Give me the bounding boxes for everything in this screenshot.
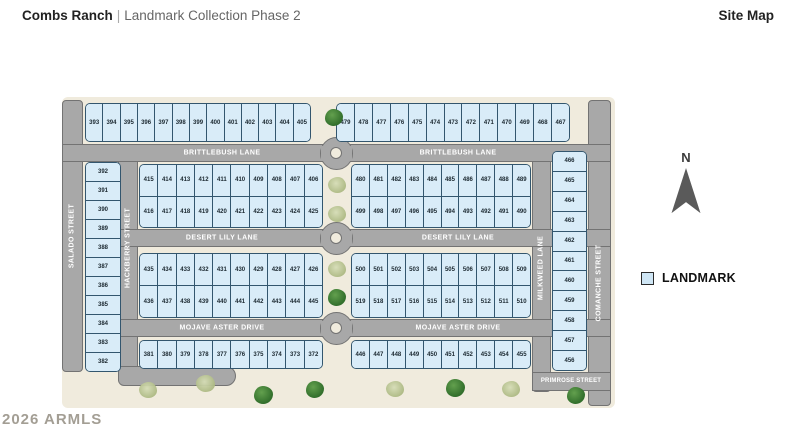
lot-378: 378	[194, 341, 212, 368]
lot-433: 433	[176, 254, 194, 285]
lot-414: 414	[157, 165, 175, 196]
lot-403: 403	[258, 104, 275, 141]
bush-icon	[328, 261, 346, 277]
street-label-mojave-east: MOJAVE ASTER DRIVE	[416, 325, 501, 332]
lot-372: 372	[304, 341, 322, 368]
lot-492: 492	[476, 197, 494, 228]
roundabout-island	[330, 322, 342, 334]
lot-461: 461	[553, 251, 586, 271]
site-map-page: Combs Ranch|Landmark Collection Phase 2 …	[0, 0, 800, 448]
lot-block-d: 500501502503504505506507508509 519518517…	[351, 253, 531, 318]
legend-landmark-swatch	[641, 272, 654, 285]
lot-column-east: 466465464463462461460459458457456	[552, 151, 587, 371]
lot-421: 421	[230, 197, 248, 228]
lot-487: 487	[476, 165, 494, 196]
lot-423: 423	[267, 197, 285, 228]
lot-447: 447	[369, 341, 387, 368]
lot-399: 399	[189, 104, 206, 141]
street-label-desert-lily-west: DESERT LILY LANE	[186, 235, 258, 242]
lot-459: 459	[553, 290, 586, 310]
street-label-hackberry: HACKBERRY STREET	[125, 208, 132, 288]
lot-428: 428	[267, 254, 285, 285]
lot-383: 383	[86, 333, 120, 352]
street-label-milkweed: MILKWEED LANE	[538, 236, 545, 300]
lot-404: 404	[275, 104, 292, 141]
lot-385: 385	[86, 295, 120, 314]
armls-watermark: 2026 ARMLS	[2, 411, 102, 428]
lot-row-bottom-right: 446447448449450451452453454455	[351, 340, 531, 369]
lot-494: 494	[441, 197, 459, 228]
roundabout-island	[330, 232, 342, 244]
lot-499: 499	[352, 197, 369, 228]
north-arrow-icon	[668, 168, 704, 219]
lot-397: 397	[154, 104, 171, 141]
lot-498: 498	[369, 197, 387, 228]
lot-463: 463	[553, 211, 586, 231]
lot-466: 466	[553, 152, 586, 171]
lot-475: 475	[408, 104, 426, 141]
lot-441: 441	[230, 286, 248, 317]
lot-438: 438	[176, 286, 194, 317]
lot-509: 509	[512, 254, 530, 285]
lot-473: 473	[444, 104, 462, 141]
lot-464: 464	[553, 191, 586, 211]
lot-453: 453	[476, 341, 494, 368]
lot-382: 382	[86, 352, 120, 371]
street-label-salado: SALADO STREET	[69, 204, 76, 268]
lot-505: 505	[441, 254, 459, 285]
lot-452: 452	[458, 341, 476, 368]
lot-454: 454	[494, 341, 512, 368]
lot-398: 398	[172, 104, 189, 141]
lot-468: 468	[533, 104, 551, 141]
lot-504: 504	[423, 254, 441, 285]
lot-411: 411	[212, 165, 230, 196]
lot-417: 417	[157, 197, 175, 228]
lot-482: 482	[387, 165, 405, 196]
lot-449: 449	[405, 341, 423, 368]
lot-470: 470	[497, 104, 515, 141]
lot-485: 485	[441, 165, 459, 196]
lot-460: 460	[553, 270, 586, 290]
lot-435: 435	[140, 254, 157, 285]
lot-387: 387	[86, 257, 120, 276]
lot-512: 512	[476, 286, 494, 317]
lot-444: 444	[285, 286, 303, 317]
lot-430: 430	[230, 254, 248, 285]
lot-426: 426	[304, 254, 322, 285]
lot-455: 455	[512, 341, 530, 368]
lot-381: 381	[140, 341, 157, 368]
street-label-desert-lily-east: DESERT LILY LANE	[422, 235, 494, 242]
lot-row-bottom-left: 381380379378377376375374373372	[139, 340, 323, 369]
street-label-mojave-west: MOJAVE ASTER DRIVE	[180, 325, 265, 332]
lot-418: 418	[176, 197, 194, 228]
lot-384: 384	[86, 314, 120, 333]
lot-412: 412	[194, 165, 212, 196]
legend-landmark-label: LANDMARK	[662, 271, 736, 285]
lot-465: 465	[553, 171, 586, 191]
lot-513: 513	[458, 286, 476, 317]
lot-400: 400	[206, 104, 223, 141]
bush-icon	[139, 382, 157, 398]
bush-icon	[328, 177, 346, 193]
lot-451: 451	[441, 341, 459, 368]
lot-416: 416	[140, 197, 157, 228]
lot-497: 497	[387, 197, 405, 228]
lot-373: 373	[285, 341, 303, 368]
lot-row-top-right: 479478477476475474473472471470469468467	[336, 103, 570, 142]
lot-396: 396	[137, 104, 154, 141]
lot-420: 420	[212, 197, 230, 228]
lot-block-c: 435434433432431430429428427426 436437438…	[139, 253, 323, 318]
lot-402: 402	[241, 104, 258, 141]
lot-458: 458	[553, 310, 586, 330]
lot-424: 424	[285, 197, 303, 228]
lot-502: 502	[387, 254, 405, 285]
lot-511: 511	[494, 286, 512, 317]
lot-448: 448	[387, 341, 405, 368]
lot-507: 507	[476, 254, 494, 285]
lot-443: 443	[267, 286, 285, 317]
lot-493: 493	[458, 197, 476, 228]
lot-506: 506	[458, 254, 476, 285]
lot-517: 517	[387, 286, 405, 317]
bush-icon	[502, 381, 520, 397]
lot-375: 375	[249, 341, 267, 368]
lot-block-a: 415414413412411410409408407406 416417418…	[139, 164, 323, 228]
lot-491: 491	[494, 197, 512, 228]
bush-icon	[196, 375, 215, 392]
lot-388: 388	[86, 238, 120, 257]
lot-516: 516	[405, 286, 423, 317]
lot-471: 471	[479, 104, 497, 141]
lot-489: 489	[512, 165, 530, 196]
lot-419: 419	[194, 197, 212, 228]
lot-462: 462	[553, 231, 586, 251]
page-title: Combs Ranch|Landmark Collection Phase 2	[22, 8, 301, 23]
lot-445: 445	[304, 286, 322, 317]
lot-514: 514	[441, 286, 459, 317]
lot-481: 481	[369, 165, 387, 196]
bush-icon	[328, 206, 346, 222]
street-label-primrose: PRIMROSE STREET	[541, 378, 601, 384]
lot-407: 407	[285, 165, 303, 196]
lot-519: 519	[352, 286, 369, 317]
lot-474: 474	[426, 104, 444, 141]
lot-block-b: 480481482483484485486487488489 499498497…	[351, 164, 531, 228]
lot-483: 483	[405, 165, 423, 196]
lot-386: 386	[86, 276, 120, 295]
lot-422: 422	[249, 197, 267, 228]
lot-480: 480	[352, 165, 369, 196]
lot-442: 442	[249, 286, 267, 317]
street-label-brittlebush-east: BRITTLEBUSH LANE	[420, 150, 497, 157]
lot-406: 406	[304, 165, 322, 196]
lot-432: 432	[194, 254, 212, 285]
lot-427: 427	[285, 254, 303, 285]
lot-440: 440	[212, 286, 230, 317]
lot-380: 380	[157, 341, 175, 368]
lot-394: 394	[102, 104, 119, 141]
title-separator: |	[113, 8, 125, 23]
lot-408: 408	[267, 165, 285, 196]
lot-484: 484	[423, 165, 441, 196]
lot-472: 472	[461, 104, 479, 141]
compass-north-label: N	[676, 150, 696, 165]
lot-495: 495	[423, 197, 441, 228]
lot-457: 457	[553, 330, 586, 350]
lot-476: 476	[390, 104, 408, 141]
lot-469: 469	[515, 104, 533, 141]
lot-429: 429	[249, 254, 267, 285]
lot-503: 503	[405, 254, 423, 285]
street-label-brittlebush-west: BRITTLEBUSH LANE	[184, 150, 261, 157]
lot-row-top-left: 393394395396397398399400401402403404405	[85, 103, 311, 142]
lot-409: 409	[249, 165, 267, 196]
hackberry-street-curve	[118, 366, 236, 386]
lot-477: 477	[372, 104, 390, 141]
lot-437: 437	[157, 286, 175, 317]
lot-374: 374	[267, 341, 285, 368]
lot-390: 390	[86, 200, 120, 219]
lot-393: 393	[86, 104, 102, 141]
lot-446: 446	[352, 341, 369, 368]
lot-434: 434	[157, 254, 175, 285]
lot-415: 415	[140, 165, 157, 196]
lot-395: 395	[120, 104, 137, 141]
lot-391: 391	[86, 181, 120, 200]
street-label-comanche: COMANCHE STREET	[596, 245, 603, 322]
lot-436: 436	[140, 286, 157, 317]
lot-439: 439	[194, 286, 212, 317]
lot-496: 496	[405, 197, 423, 228]
lot-450: 450	[423, 341, 441, 368]
site-map-label: Site Map	[718, 8, 774, 23]
roundabout-island	[330, 147, 342, 159]
lot-425: 425	[304, 197, 322, 228]
lot-510: 510	[512, 286, 530, 317]
lot-379: 379	[176, 341, 194, 368]
lot-431: 431	[212, 254, 230, 285]
lot-488: 488	[494, 165, 512, 196]
lot-501: 501	[369, 254, 387, 285]
lot-376: 376	[230, 341, 248, 368]
collection-subtitle: Landmark Collection Phase 2	[124, 8, 300, 23]
lot-486: 486	[458, 165, 476, 196]
lot-515: 515	[423, 286, 441, 317]
lot-405: 405	[293, 104, 310, 141]
lot-389: 389	[86, 219, 120, 238]
lot-410: 410	[230, 165, 248, 196]
lot-377: 377	[212, 341, 230, 368]
lot-456: 456	[553, 350, 586, 370]
lot-478: 478	[354, 104, 372, 141]
community-name: Combs Ranch	[22, 8, 113, 23]
lot-518: 518	[369, 286, 387, 317]
lot-392: 392	[86, 163, 120, 181]
lot-490: 490	[512, 197, 530, 228]
lot-401: 401	[224, 104, 241, 141]
legend: LANDMARK	[641, 271, 736, 285]
lot-500: 500	[352, 254, 369, 285]
lot-column-west: 392391390389388387386385384383382	[85, 162, 121, 372]
lot-413: 413	[176, 165, 194, 196]
lot-508: 508	[494, 254, 512, 285]
lot-467: 467	[551, 104, 569, 141]
bush-icon	[386, 381, 404, 397]
